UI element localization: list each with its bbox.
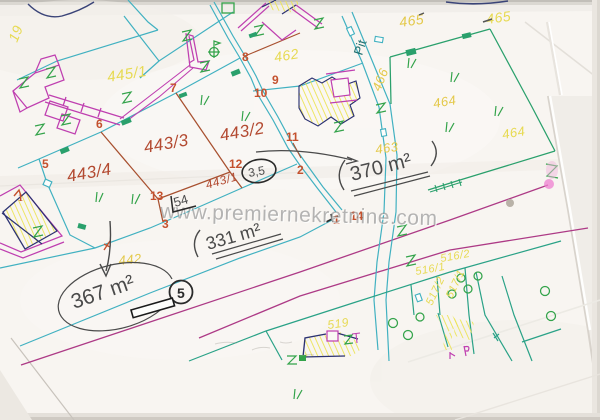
svg-text:519: 519 bbox=[326, 315, 349, 332]
svg-text:3,5: 3,5 bbox=[247, 163, 266, 180]
svg-text:465: 465 bbox=[485, 8, 512, 27]
svg-text:10: 10 bbox=[254, 86, 268, 100]
svg-text:5: 5 bbox=[42, 157, 49, 171]
svg-text:9: 9 bbox=[272, 73, 279, 87]
svg-text:1: 1 bbox=[18, 193, 23, 204]
svg-text:11: 11 bbox=[286, 130, 299, 144]
svg-text:8: 8 bbox=[242, 50, 249, 64]
svg-text:5: 5 bbox=[177, 285, 185, 301]
svg-text:6: 6 bbox=[96, 117, 103, 131]
svg-text:442: 442 bbox=[118, 251, 143, 268]
svg-text:2: 2 bbox=[297, 163, 304, 177]
svg-text:7: 7 bbox=[170, 81, 177, 95]
svg-text:12: 12 bbox=[229, 157, 243, 171]
